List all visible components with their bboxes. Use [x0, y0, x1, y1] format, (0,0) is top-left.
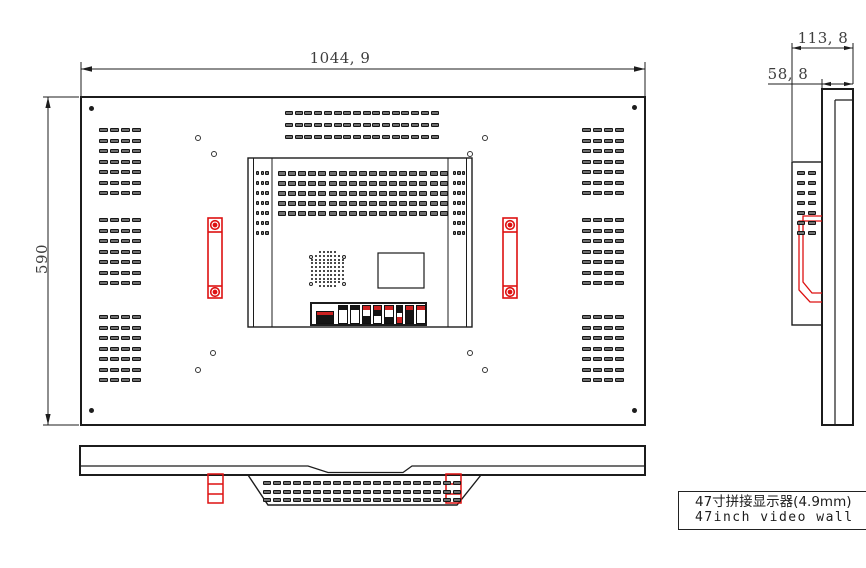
connector-segment: [417, 310, 425, 323]
bottom-trapezoid-vents-slot: [363, 481, 371, 485]
rear-right-vents-slot: [593, 239, 602, 243]
rear-left-vents-slot: [99, 170, 108, 174]
rear-left-vents-slot: [99, 315, 108, 319]
dim-width-label: 1044, 9: [270, 49, 410, 67]
rear-left-vents-slot: [110, 181, 119, 185]
rear-right-vents-slot: [582, 260, 591, 264]
bottom-trapezoid-vents-slot: [353, 481, 361, 485]
rear-right-vents-slot: [604, 160, 613, 164]
connector-8: [405, 305, 414, 324]
rear-left-vents-slot: [99, 191, 108, 195]
speaker-dot: [330, 281, 332, 283]
module-vent-rows-slot: [369, 181, 377, 186]
rear-top-center-vents-slot: [411, 123, 419, 127]
speaker-dot: [342, 274, 344, 276]
rear-right-vents-slot: [582, 239, 591, 243]
rear-right-vents-slot: [593, 357, 602, 361]
rear-right-vents-slot: [604, 239, 613, 243]
module-vent-rows-slot: [409, 181, 417, 186]
rear-top-center-vents-slot: [295, 123, 303, 127]
speaker-dot: [323, 285, 325, 287]
speaker-dot: [342, 262, 344, 264]
speaker-dot: [330, 274, 332, 276]
rear-left-vents-slot: [99, 347, 108, 351]
rear-top-center-vents-slot: [353, 123, 361, 127]
connector-4: [362, 305, 371, 324]
bottom-trapezoid-vents-slot: [273, 481, 281, 485]
rear-right-vents-slot: [615, 281, 624, 285]
rear-top-center-vents-slot: [431, 135, 439, 139]
rear-right-vents-slot: [615, 357, 624, 361]
speaker-dot: [327, 281, 329, 283]
side-enclosure-vents-slot: [797, 181, 805, 185]
rear-top-center-vents-slot: [363, 135, 371, 139]
speaker-dot: [334, 255, 336, 257]
rear-left-vents-slot: [99, 260, 108, 264]
module-vent-rows-slot: [339, 181, 347, 186]
rear-left-vents-slot: [110, 128, 119, 132]
rear-top-center-vents-slot: [392, 123, 400, 127]
connector-3: [350, 305, 360, 324]
rear-right-vents-slot: [604, 336, 613, 340]
connector-segment: [385, 310, 393, 317]
rear-left-vents-slot: [121, 139, 130, 143]
bottom-trapezoid-vents-slot: [343, 490, 351, 494]
rear-left-vents-slot: [99, 281, 108, 285]
speaker-dot: [315, 281, 317, 283]
module-vent-rows-slot: [419, 191, 427, 196]
speaker-dot: [315, 270, 317, 272]
module-vent-rows-slot: [389, 211, 397, 216]
speaker-dot: [330, 266, 332, 268]
bottom-trapezoid-vents-slot: [323, 490, 331, 494]
module-vent-rows-slot: [399, 171, 407, 176]
rear-left-vents-slot: [121, 378, 130, 382]
rear-right-vents-slot: [615, 239, 624, 243]
speaker-dot: [330, 259, 332, 261]
module-vent-rows-slot: [339, 201, 347, 206]
speaker-dot: [323, 278, 325, 280]
module-strip-left-slot: [265, 201, 268, 205]
rear-right-vents-slot: [582, 250, 591, 254]
rear-top-center-vents-slot: [285, 111, 293, 115]
bottom-trapezoid-vents-slot: [453, 481, 461, 485]
rear-left-vents-slot: [110, 239, 119, 243]
title-line-en: 47inch video wall: [695, 510, 866, 526]
speaker-ring: [309, 282, 313, 286]
rear-right-vents-slot: [615, 218, 624, 222]
connector-segment: [351, 310, 359, 323]
rear-top-center-vents-slot: [295, 135, 303, 139]
bottom-trapezoid-vents-slot: [263, 481, 271, 485]
bottom-trapezoid-vents-slot: [353, 498, 361, 502]
rear-right-vents-slot: [615, 260, 624, 264]
rear-left-vents-slot: [121, 229, 130, 233]
speaker-dot: [334, 262, 336, 264]
module-vent-rows-slot: [369, 211, 377, 216]
rear-left-vents-slot: [132, 170, 141, 174]
bottom-trapezoid-vents-slot: [313, 498, 321, 502]
speaker-dot: [334, 259, 336, 261]
speaker-dot: [323, 262, 325, 264]
module-strip-left-slot: [256, 191, 259, 195]
rear-left-vents-slot: [110, 357, 119, 361]
speaker-dot: [338, 274, 340, 276]
rear-right-vents-slot: [593, 139, 602, 143]
module-vent-rows-slot: [278, 201, 286, 206]
module-vent-rows-slot: [359, 171, 367, 176]
module-vent-rows-slot: [359, 191, 367, 196]
rear-right-vents-slot: [593, 160, 602, 164]
rear-right-vents-slot: [604, 181, 613, 185]
module-vent-rows-slot: [359, 181, 367, 186]
speaker-dot: [323, 270, 325, 272]
connector-5: [373, 305, 382, 324]
module-strip-right-slot: [453, 171, 456, 175]
speaker-dot: [323, 281, 325, 283]
rear-left-vents-slot: [99, 368, 108, 372]
rear-left-vents-slot: [132, 378, 141, 382]
rear-right-vents-slot: [582, 170, 591, 174]
module-strip-left-slot: [261, 221, 264, 225]
bottom-trapezoid-vents-slot: [433, 481, 441, 485]
rear-right-vents-slot: [593, 260, 602, 264]
rear-right-vents-slot: [615, 128, 624, 132]
module-vent-rows-slot: [278, 181, 286, 186]
module-vent-rows-slot: [379, 201, 387, 206]
module-vent-rows-slot: [308, 171, 316, 176]
bottom-trapezoid-vents-slot: [273, 498, 281, 502]
module-vent-rows-slot: [359, 201, 367, 206]
rear-left-vents-slot: [132, 139, 141, 143]
rear-right-vents-slot: [615, 368, 624, 372]
bottom-trapezoid-vents-slot: [283, 481, 291, 485]
module-vent-rows-slot: [430, 191, 438, 196]
module-vent-rows-slot: [318, 171, 326, 176]
rear-top-center-vents-slot: [421, 123, 429, 127]
rear-right-vents-slot: [615, 181, 624, 185]
rear-left-vents-slot: [99, 239, 108, 243]
module-strip-left-slot: [256, 221, 259, 225]
bottom-trapezoid-vents-slot: [303, 498, 311, 502]
speaker-dot: [338, 266, 340, 268]
speaker-dot: [315, 274, 317, 276]
bottom-trapezoid-vents-slot: [283, 498, 291, 502]
module-strip-right-slot: [453, 221, 456, 225]
rear-left-vents-slot: [121, 357, 130, 361]
bottom-trapezoid-vents-slot: [333, 498, 341, 502]
module-vent-rows-slot: [288, 201, 296, 206]
rear-right-vents-slot: [582, 315, 591, 319]
module-vent-rows-slot: [349, 171, 357, 176]
rear-left-vents-slot: [121, 315, 130, 319]
rear-left-vents-slot: [121, 149, 130, 153]
rear-left-vents-slot: [99, 149, 108, 153]
module-vent-rows-slot: [329, 171, 337, 176]
rear-right-vents-slot: [604, 347, 613, 351]
mount-hole: [195, 367, 201, 373]
module-vent-rows-slot: [369, 201, 377, 206]
bottom-trapezoid-vents-slot: [303, 481, 311, 485]
rear-left-vents-slot: [132, 128, 141, 132]
rear-left-vents-slot: [121, 326, 130, 330]
module-vent-rows-slot: [288, 191, 296, 196]
connector-segment: [397, 306, 402, 313]
rear-left-vents-slot: [110, 378, 119, 382]
speaker-dot: [330, 270, 332, 272]
bottom-trapezoid-vents-slot: [413, 490, 421, 494]
bottom-trapezoid-vents-slot: [383, 498, 391, 502]
connector-segment: [406, 310, 413, 323]
module-vent-rows-slot: [440, 211, 448, 216]
rear-right-vents-slot: [593, 250, 602, 254]
bottom-trapezoid-vents-slot: [263, 490, 271, 494]
rear-right-vents-slot: [582, 139, 591, 143]
connector-2: [338, 305, 348, 324]
rear-right-vents-slot: [582, 149, 591, 153]
speaker-dot: [342, 270, 344, 272]
module-vent-rows-slot: [419, 171, 427, 176]
rear-right-vents-slot: [582, 357, 591, 361]
module-vent-rows-slot: [339, 211, 347, 216]
module-vent-rows-slot: [440, 191, 448, 196]
speaker-dot: [315, 266, 317, 268]
speaker-dot: [319, 285, 321, 287]
speaker-dot: [311, 274, 313, 276]
speaker-dot: [327, 270, 329, 272]
speaker-dot: [311, 266, 313, 268]
rear-top-center-vents-slot: [353, 135, 361, 139]
module-vent-rows-slot: [399, 201, 407, 206]
rear-left-vents-slot: [132, 260, 141, 264]
module-vent-rows-slot: [389, 181, 397, 186]
rear-right-vents-slot: [615, 170, 624, 174]
module-vent-rows-slot: [440, 181, 448, 186]
bottom-trapezoid-vents-slot: [323, 498, 331, 502]
module-strip-left-slot: [256, 211, 259, 215]
rear-left-vents-slot: [121, 160, 130, 164]
speaker-dot: [338, 255, 340, 257]
rear-right-vents-slot: [582, 229, 591, 233]
module-vent-rows-slot: [278, 211, 286, 216]
rear-top-center-vents-slot: [372, 135, 380, 139]
module-strip-right-slot: [457, 201, 460, 205]
module-vent-rows-slot: [308, 191, 316, 196]
speaker-dot: [323, 274, 325, 276]
rear-right-vents-slot: [615, 191, 624, 195]
rear-top-center-vents-slot: [343, 111, 351, 115]
bottom-trapezoid-vents-slot: [383, 490, 391, 494]
bottom-trapezoid-vents-slot: [373, 490, 381, 494]
connector-segment: [397, 317, 402, 323]
rear-left-vents-slot: [121, 239, 130, 243]
rear-right-vents-slot: [604, 315, 613, 319]
rear-top-center-vents-slot: [314, 123, 322, 127]
connector-9: [416, 305, 426, 324]
bottom-trapezoid-vents-slot: [343, 481, 351, 485]
bottom-trapezoid-vents-slot: [313, 481, 321, 485]
rear-top-center-vents-slot: [382, 135, 390, 139]
module-strip-left-slot: [265, 181, 268, 185]
bottom-trapezoid-vents-slot: [423, 481, 431, 485]
module-vent-rows-slot: [288, 171, 296, 176]
bottom-trapezoid-vents-slot: [303, 490, 311, 494]
bottom-trapezoid-vents-slot: [263, 498, 271, 502]
speaker-dot: [327, 255, 329, 257]
rear-left-vents-slot: [110, 149, 119, 153]
rear-top-center-vents-slot: [431, 123, 439, 127]
bottom-trapezoid-vents-slot: [333, 490, 341, 494]
rear-top-center-vents-slot: [304, 111, 312, 115]
speaker-dot: [323, 259, 325, 261]
rear-left-vents-slot: [110, 250, 119, 254]
rear-right-vents-slot: [604, 326, 613, 330]
dim-depth-panel-label: 58, 8: [763, 65, 813, 83]
bottom-trapezoid-vents-slot: [323, 481, 331, 485]
rear-left-vents-slot: [121, 250, 130, 254]
module-vent-rows-slot: [419, 211, 427, 216]
rear-left-vents-slot: [99, 250, 108, 254]
rear-left-vents-slot: [99, 181, 108, 185]
speaker-dot: [319, 270, 321, 272]
speaker-dot: [319, 266, 321, 268]
bottom-trapezoid-vents-slot: [413, 498, 421, 502]
rear-right-vents-slot: [582, 347, 591, 351]
mount-hole: [195, 135, 201, 141]
speaker-dot: [319, 251, 321, 253]
rear-right-vents-slot: [604, 378, 613, 382]
rear-right-vents-slot: [593, 218, 602, 222]
module-vent-rows-slot: [399, 191, 407, 196]
bottom-trapezoid-vents-slot: [413, 481, 421, 485]
module-vent-rows-slot: [430, 211, 438, 216]
rear-right-vents-slot: [604, 191, 613, 195]
module-vent-rows-slot: [399, 211, 407, 216]
rear-right-vents-slot: [593, 378, 602, 382]
speaker-dot: [327, 251, 329, 253]
connector-7: [396, 305, 403, 324]
module-vent-rows-slot: [318, 201, 326, 206]
bottom-trapezoid-vents-slot: [373, 498, 381, 502]
module-vent-rows-slot: [389, 191, 397, 196]
rear-left-vents-slot: [121, 128, 130, 132]
side-enclosure-vents-slot: [797, 221, 805, 225]
side-enclosure-vents-slot: [808, 181, 816, 185]
rear-top-center-vents-slot: [304, 135, 312, 139]
speaker-dot: [323, 266, 325, 268]
rear-right-vents-slot: [604, 368, 613, 372]
rear-right-vents-slot: [615, 229, 624, 233]
bottom-trapezoid-vents-slot: [283, 490, 291, 494]
module-strip-right-slot: [462, 171, 465, 175]
bottom-trapezoid-vents-slot: [293, 490, 301, 494]
rear-left-vents-slot: [99, 128, 108, 132]
rear-right-vents-slot: [582, 281, 591, 285]
title-line-cn: 47寸拼接显示器(4.9mm): [695, 494, 866, 510]
rear-right-vents-slot: [593, 191, 602, 195]
module-strip-right-slot: [453, 191, 456, 195]
rear-top-center-vents-slot: [363, 111, 371, 115]
speaker-ring: [342, 282, 346, 286]
module-vent-rows-slot: [298, 211, 306, 216]
rear-left-vents-slot: [110, 368, 119, 372]
screw-hole: [89, 106, 94, 111]
rear-right-vents-slot: [593, 229, 602, 233]
module-strip-right-slot: [457, 231, 460, 235]
rear-left-vents-slot: [110, 315, 119, 319]
speaker-dot: [315, 278, 317, 280]
rear-right-vents-slot: [582, 128, 591, 132]
module-strip-right-slot: [462, 201, 465, 205]
speaker-dot: [327, 278, 329, 280]
connector-segment: [317, 315, 333, 323]
rear-left-vents-slot: [99, 139, 108, 143]
speaker-dot: [315, 255, 317, 257]
rear-left-vents-slot: [132, 368, 141, 372]
side-enclosure-vents-slot: [808, 171, 816, 175]
speaker-dot: [338, 281, 340, 283]
rear-right-vents-slot: [593, 326, 602, 330]
speaker-dot: [342, 278, 344, 280]
rear-left-vents-slot: [132, 239, 141, 243]
rear-left-vents-slot: [132, 326, 141, 330]
speaker-dot: [334, 266, 336, 268]
module-vent-rows-slot: [329, 211, 337, 216]
bottom-trapezoid-vents-slot: [393, 498, 401, 502]
rear-right-vents-slot: [593, 149, 602, 153]
rear-right-vents-slot: [582, 271, 591, 275]
screw-hole: [89, 408, 94, 413]
rear-right-vents-slot: [615, 149, 624, 153]
rear-left-vents-slot: [132, 271, 141, 275]
module-strip-left-slot: [265, 231, 268, 235]
rear-right-vents-slot: [604, 271, 613, 275]
speaker-dot: [338, 278, 340, 280]
rear-right-vents-slot: [615, 347, 624, 351]
module-vent-rows-slot: [379, 181, 387, 186]
title-block: 47寸拼接显示器(4.9mm) 47inch video wall: [678, 491, 866, 530]
rear-right-vents-slot: [615, 336, 624, 340]
speaker-dot: [327, 266, 329, 268]
module-vent-rows-slot: [349, 181, 357, 186]
module-vent-rows-slot: [379, 191, 387, 196]
rear-top-center-vents-slot: [304, 123, 312, 127]
mount-hole: [467, 350, 473, 356]
rear-right-vents-slot: [615, 326, 624, 330]
module-strip-right-slot: [457, 171, 460, 175]
rear-right-vents-slot: [604, 281, 613, 285]
side-enclosure-vents-slot: [808, 231, 816, 235]
dim-depth-total-label: 113, 8: [793, 29, 853, 47]
bottom-trapezoid-vents-slot: [403, 498, 411, 502]
module-strip-left-slot: [265, 171, 268, 175]
module-strip-right-slot: [453, 231, 456, 235]
bottom-trapezoid-vents-slot: [453, 490, 461, 494]
rear-left-vents-slot: [121, 347, 130, 351]
module-vent-rows-slot: [430, 201, 438, 206]
speaker-dot: [327, 285, 329, 287]
speaker-dot: [327, 274, 329, 276]
rear-top-center-vents-slot: [421, 111, 429, 115]
rear-top-center-vents-slot: [334, 111, 342, 115]
side-enclosure-vents-slot: [797, 191, 805, 195]
module-vent-rows-slot: [298, 201, 306, 206]
rear-right-vents-slot: [604, 229, 613, 233]
module-strip-left-slot: [256, 171, 259, 175]
bottom-trapezoid-vents-slot: [373, 481, 381, 485]
rear-top-center-vents-slot: [324, 111, 332, 115]
speaker-dot: [311, 270, 313, 272]
